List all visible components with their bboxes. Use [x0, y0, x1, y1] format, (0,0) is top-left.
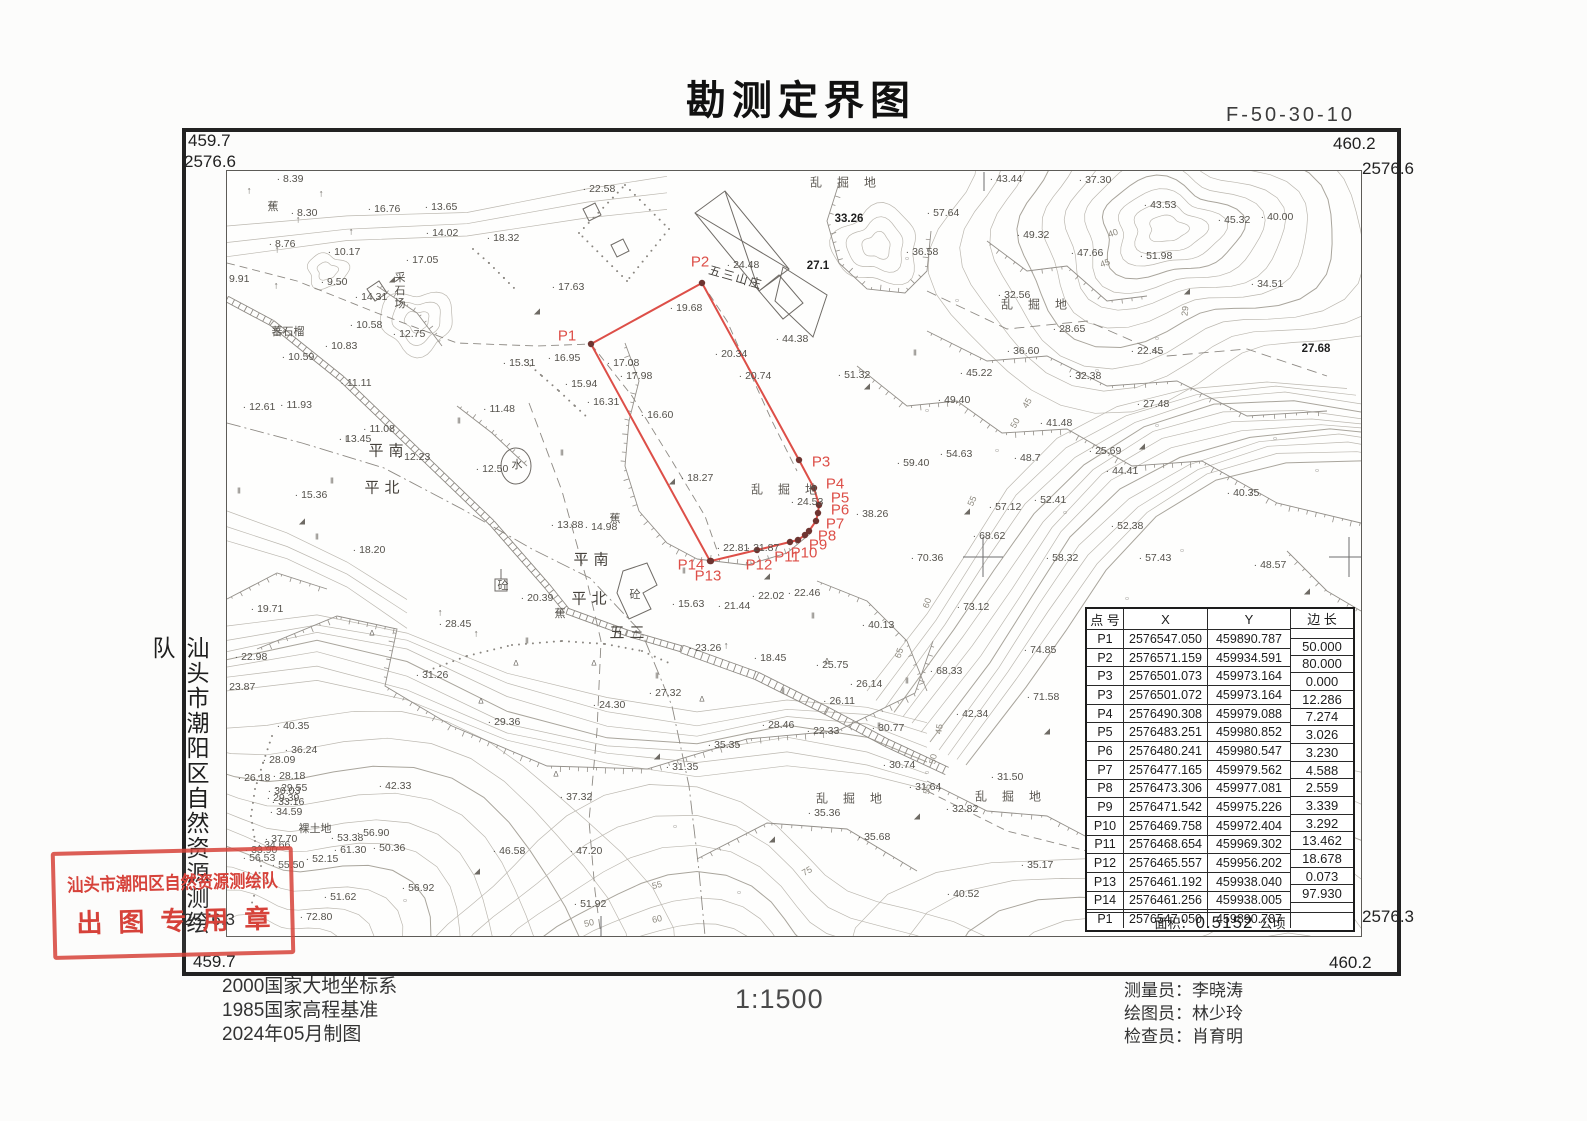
map-symbol: Ⅱ: [237, 487, 241, 496]
elevation-label: 52.41: [1034, 494, 1067, 506]
elevation-label: 57.64: [927, 207, 960, 219]
elevation-label: 40.52: [947, 888, 980, 900]
table-cell: 2576501.073: [1124, 667, 1208, 685]
parcel-boundary: [588, 280, 822, 564]
edge-length-column: 边 长 50.00080.0000.00012.2867.2743.0263.2…: [1291, 609, 1353, 912]
elevation-label: 56.92: [402, 882, 435, 894]
table-cell: 459979.088: [1208, 705, 1291, 723]
elevation-label: 12.75: [393, 328, 426, 340]
elevation-label: 24.30: [593, 699, 626, 711]
elevation-label: 30.74: [883, 759, 916, 771]
contour-label: 50: [583, 917, 595, 929]
table-cell: 459969.302: [1208, 836, 1291, 854]
edge-length-cell: 13.462: [1291, 832, 1353, 850]
datum-line: 2024年05月制图: [222, 1023, 397, 1047]
stamp-line2: 出图专用章: [60, 898, 287, 941]
map-symbol: ○: [1180, 548, 1184, 555]
area-label: 面积：: [1154, 913, 1193, 932]
place-label: 砼: [630, 586, 641, 602]
edge-length-cell: 0.000: [1291, 673, 1353, 691]
elevation-label: 36.60: [1007, 345, 1040, 357]
elevation-label: 28.09: [263, 754, 296, 766]
table-cell: P2: [1087, 649, 1124, 667]
elevation-label: 59.40: [897, 457, 930, 469]
elevation-label: 15.36: [295, 489, 328, 501]
agency-seal-stamp: 汕头市潮阳区自然资源测绘队 出图专用章: [51, 846, 296, 960]
elevation-label: 26.18: [238, 772, 271, 784]
stamp-line1: 汕头市潮阳区自然资源测绘队: [67, 866, 278, 897]
table-row: P12576547.050459890.787: [1087, 630, 1291, 649]
map-symbol: ∆: [825, 657, 830, 666]
elevation-label: 12.61: [243, 401, 276, 413]
table-cell: P1: [1087, 910, 1124, 928]
elevation-label: 57.12: [989, 501, 1022, 513]
elevation-label: 25.75: [816, 659, 849, 671]
table-row: P32576501.073459973.164: [1087, 667, 1291, 686]
map-symbol: ↑: [724, 641, 729, 652]
elevation-label: 16.76: [368, 203, 401, 215]
elevation-label: 49.32: [1017, 229, 1050, 241]
elevation-label: 29.36: [488, 716, 521, 728]
table-row: P82576473.306459977.081: [1087, 780, 1291, 799]
table-cell: 2576483.251: [1124, 723, 1208, 741]
map-symbol: ◢: [864, 382, 870, 391]
elevation-label-bold: 27.68: [1302, 343, 1331, 355]
elevation-label: 20.74: [739, 370, 772, 382]
table-cell: P5: [1087, 723, 1124, 741]
edge-length-cell: 3.292: [1291, 815, 1353, 833]
elevation-label: 17.08: [607, 357, 640, 369]
table-cell: 2576490.308: [1124, 705, 1208, 723]
table-cell: 459890.787: [1208, 630, 1291, 648]
table-cell: 2576501.072: [1124, 686, 1208, 704]
table-cell: P12: [1087, 854, 1124, 872]
edge-length-cell: 7.274: [1291, 709, 1353, 727]
contour-label: 29: [1180, 306, 1191, 317]
table-cell: P7: [1087, 761, 1124, 779]
map-sheet-number: F-50-30-10: [1226, 104, 1355, 127]
elevation-label: 52.38: [1111, 520, 1144, 532]
map-symbol: Ⅱ: [345, 435, 349, 444]
table-row: P142576461.256459938.005: [1087, 892, 1291, 911]
table-cell: 459938.040: [1208, 873, 1291, 891]
map-symbol: ○: [1155, 423, 1159, 430]
corner-northing-top-left: 2576.6: [184, 152, 236, 172]
map-symbol: ○: [737, 890, 741, 897]
credit-line: 检查员：肖育明: [1124, 1025, 1243, 1048]
edge-length-cell: 80.000: [1291, 656, 1353, 674]
datum-line: 2000国家大地坐标系: [222, 975, 397, 999]
table-cell: 459938.005: [1208, 892, 1291, 910]
map-symbol: ∆: [479, 697, 484, 706]
elevation-label: 24.53: [791, 496, 824, 508]
map-symbol: ○: [995, 448, 999, 455]
contour-label: 55: [921, 783, 933, 795]
elevation-label: 11.48: [483, 403, 515, 415]
place-label: 蕉: [268, 198, 279, 214]
elevation-label: 35.35: [708, 739, 741, 751]
elevation-label: 47.20: [570, 845, 603, 857]
table-cell: 2576461.192: [1124, 873, 1208, 891]
vegetation-dots: [249, 184, 670, 910]
elevation-label: 43.53: [1144, 199, 1177, 211]
elevation-label: 22.33: [807, 725, 840, 737]
map-symbol: ∆: [554, 770, 559, 779]
elevation-label: 19.68: [670, 302, 703, 314]
elevation-label: 54.63: [940, 448, 973, 460]
table-header-row: 点 号 X Y: [1087, 609, 1291, 630]
place-label: 五三: [604, 622, 649, 643]
map-symbol: ↑: [634, 628, 639, 639]
elevation-label: 43.44: [990, 173, 1023, 185]
elevation-label: 8.39: [277, 173, 304, 185]
map-symbol: ◢: [389, 275, 395, 284]
credit-line: 测量员：李晓涛: [1124, 979, 1243, 1002]
table-row: P72576477.165459979.562: [1087, 761, 1291, 780]
map-symbol: ◢: [914, 812, 920, 821]
page-title: 勘测定界图: [686, 68, 916, 126]
map-symbol: ◢: [1044, 727, 1050, 736]
elevation-label: 16.95: [548, 352, 581, 364]
map-symbol: ↑: [319, 189, 324, 200]
elevation-label: 28.45: [439, 618, 472, 630]
map-symbol: ↑: [438, 608, 443, 619]
area-unit: 公顷: [1260, 913, 1286, 932]
map-symbol: Ⅱ: [913, 349, 917, 358]
corner-easting-bottom-right: 460.2: [1329, 953, 1372, 973]
elevation-label: 51.98: [1140, 250, 1173, 262]
contour-label: 60: [651, 913, 663, 925]
table-cell: 2576571.159: [1124, 649, 1208, 667]
table-row: P112576468.654459969.302: [1087, 836, 1291, 855]
table-cell: P3: [1087, 667, 1124, 685]
coordinate-table-body: 点 号 X Y P12576547.050459890.787P22576571…: [1087, 609, 1353, 912]
map-symbol: Ⅱ: [811, 612, 815, 621]
map-symbol: ↑: [247, 186, 252, 197]
datum-line: 1985国家高程基准: [222, 999, 397, 1023]
place-label: 砼: [498, 577, 509, 593]
elevation-label: 48.7: [1014, 452, 1041, 464]
map-symbol: ○: [1125, 596, 1129, 603]
table-cell: 459975.226: [1208, 798, 1291, 816]
elevation-label: 34.51: [1251, 278, 1284, 290]
elevation-label: 44.41: [1106, 465, 1139, 477]
elevation-label: 58.32: [1046, 552, 1079, 564]
elevation-label: 44.38: [776, 333, 809, 345]
map-symbol: ↑: [274, 281, 279, 292]
edge-length-cell: 50.000: [1291, 638, 1353, 656]
table-cell: 2576477.165: [1124, 761, 1208, 779]
elevation-label: 13.65: [425, 201, 458, 213]
table-cell: 2576468.654: [1124, 836, 1208, 854]
elevation-label: 35.36: [808, 807, 841, 819]
table-row: P122576465.557459956.202: [1087, 854, 1291, 873]
elevation-label: 17.05: [406, 254, 439, 266]
map-symbol: Ⅱ: [330, 477, 334, 486]
map-symbol: ○: [673, 824, 677, 831]
elevation-label: 42.34: [956, 708, 989, 720]
map-symbol: Ⅱ: [781, 687, 785, 696]
elevation-label: 51.32: [838, 369, 871, 381]
table-row: P42576490.308459979.088: [1087, 705, 1291, 724]
map-symbol: ∆: [700, 695, 705, 704]
elevation-label: 41.48: [1040, 417, 1073, 429]
elevation-label-bold: 33.26: [835, 213, 864, 225]
elevation-label: 18.20: [353, 544, 386, 556]
map-symbol: ↑: [474, 629, 479, 640]
edge-length-cell: 18.678: [1291, 850, 1353, 868]
header-edge-length: 边 长: [1291, 609, 1353, 629]
contour-label: 50: [927, 753, 939, 765]
elevation-label: 17.98: [620, 370, 653, 382]
elevation-label: 31.35: [666, 761, 699, 773]
table-cell: 459973.164: [1208, 667, 1291, 685]
elevation-label: 68.33: [930, 665, 963, 677]
elevation-label: 22.98: [235, 651, 268, 663]
boundary-point-label: P2: [691, 254, 709, 271]
elevation-label: 18.27: [681, 472, 714, 484]
elevation-label: 26.14: [850, 678, 883, 690]
elevation-label: 37.30: [1079, 174, 1112, 186]
table-cell: 459980.852: [1208, 723, 1291, 741]
table-cell: P10: [1087, 817, 1124, 835]
map-scale: 1:1500: [735, 984, 824, 1015]
table-cell: P9: [1087, 798, 1124, 816]
elevation-label: 9.91: [226, 273, 249, 285]
elevation-label: 61.30: [334, 844, 367, 856]
elevation-label: 20.39: [521, 592, 554, 604]
elevation-label: 25.69: [1089, 445, 1122, 457]
header-point: 点 号: [1087, 609, 1124, 629]
table-cell: 2576469.758: [1124, 817, 1208, 835]
elevation-label: 23.87: [226, 681, 255, 693]
elevation-label: 16.60: [641, 409, 674, 421]
elevation-label: 11.11: [340, 377, 371, 389]
elevation-label: 49.40: [938, 394, 971, 406]
elevation-label: 10.58: [350, 319, 383, 331]
elevation-label: 45.22: [960, 367, 993, 379]
table-cell: 2576471.542: [1124, 798, 1208, 816]
table-cell: 459956.202: [1208, 854, 1291, 872]
table-row: P92576471.542459975.226: [1087, 798, 1291, 817]
elevation-label: 22.58: [583, 183, 616, 195]
boundary-point-label: P11: [774, 549, 800, 566]
elevation-label: 17.63: [552, 281, 585, 293]
elevation-label: 21.44: [718, 600, 751, 612]
elevation-label: 27.32: [649, 687, 682, 699]
elevation-label: 38.26: [856, 508, 889, 520]
map-symbol: ◢: [474, 867, 480, 876]
map-symbol: ○: [925, 770, 929, 777]
elevation-label: 10.59: [282, 351, 315, 363]
map-symbol: Ⅱ: [655, 672, 659, 681]
map-symbol: ◢: [1139, 442, 1145, 451]
table-cell: 459973.164: [1208, 686, 1291, 704]
elevation-label: 22.81: [717, 542, 750, 554]
table-row: P102576469.758459972.404: [1087, 817, 1291, 836]
table-cell: 2576465.557: [1124, 854, 1208, 872]
table-cell: 459977.081: [1208, 780, 1291, 798]
elevation-label: 22.45: [1131, 345, 1164, 357]
map-symbol: ○: [1273, 436, 1277, 443]
map-symbol: ○: [1033, 298, 1037, 305]
elevation-label: 56.90: [357, 827, 390, 839]
table-cell: 459972.404: [1208, 817, 1291, 835]
table-row: P22576571.159459934.591: [1087, 649, 1291, 668]
elevation-label: 28.46: [762, 719, 795, 731]
datum-notes: 2000国家大地坐标系1985国家高程基准2024年05月制图: [222, 975, 397, 1047]
elevation-label: 35.17: [1021, 859, 1054, 871]
elevation-label: 14.02: [426, 227, 459, 239]
place-label: 乱掘地: [736, 481, 832, 498]
elevation-label: 36.58: [906, 246, 939, 258]
header-y: Y: [1208, 609, 1291, 629]
table-cell: P8: [1087, 780, 1124, 798]
elevation-label: 8.76: [269, 238, 296, 250]
elevation-label: 15.31: [503, 357, 536, 369]
edge-length-cell: 2.559: [1291, 779, 1353, 797]
header-x: X: [1124, 609, 1208, 629]
elevation-label: 35.68: [858, 831, 891, 843]
elevation-label: 71.58: [1027, 691, 1060, 703]
table-row: P52576483.251459980.852: [1087, 723, 1291, 742]
map-symbol: ◢: [1184, 287, 1190, 296]
elevation-label: 47.66: [1071, 247, 1104, 259]
table-cell: 459979.562: [1208, 761, 1291, 779]
map-symbol: Ⅱ: [525, 637, 529, 646]
map-symbol: ○: [1315, 468, 1319, 475]
elevation-label: 73.12: [957, 601, 990, 613]
table-cell: P1: [1087, 630, 1124, 648]
map-symbol: ○: [1063, 510, 1067, 517]
elevation-label: 19.71: [251, 603, 284, 615]
elevation-label: 68.62: [973, 530, 1006, 542]
corner-easting-top-left: 459.7: [188, 131, 231, 151]
place-label: 裸土地: [299, 820, 332, 836]
map-symbol: ◢: [534, 307, 540, 316]
table-cell: 2576473.306: [1124, 780, 1208, 798]
elevation-label: 40.13: [862, 619, 895, 631]
elevation-label: 57.43: [1139, 552, 1172, 564]
map-symbol: ◢: [669, 477, 675, 486]
map-symbol: Ⅱ: [457, 417, 461, 426]
elevation-label: 42.33: [379, 780, 412, 792]
survey-demarcation-sheet: 勘测定界图 F-50-30-10 459.7 2576.6 460.2 2576…: [0, 0, 1587, 1121]
elevation-label: 50.36: [373, 842, 406, 854]
map-symbol: ◢: [964, 507, 970, 516]
place-label: 平南: [568, 549, 613, 570]
edge-length-cell: 3.230: [1291, 744, 1353, 762]
elevation-label: 12.50: [476, 463, 509, 475]
table-cell: 2576480.241: [1124, 742, 1208, 760]
table-cell: P6: [1087, 742, 1124, 760]
edge-length-cell: 3.026: [1291, 726, 1353, 744]
map-symbol: ◢: [1304, 587, 1310, 596]
elevation-label: 27.48: [1137, 398, 1170, 410]
elevation-label: 40.35: [277, 720, 310, 732]
elevation-label: 51.62: [324, 891, 357, 903]
elevation-label: 18.32: [487, 232, 520, 244]
elevation-label: 34.59: [270, 806, 303, 818]
corner-northing-bottom-right: 2576.3: [1362, 907, 1414, 927]
elevation-label: 37.32: [560, 791, 593, 803]
table-cell: 459980.547: [1208, 742, 1291, 760]
place-label: 蕃石榴: [272, 323, 305, 339]
elevation-label: 22.46: [788, 587, 821, 599]
credit-line: 绘图员：林少玲: [1124, 1002, 1243, 1025]
place-label: 蕉: [555, 605, 566, 621]
area-value: 0.5152: [1196, 913, 1254, 933]
elevation-label: 28.18: [273, 770, 306, 782]
place-label: 蕉: [610, 510, 621, 526]
contour-label: 45: [933, 723, 945, 735]
table-cell: P4: [1087, 705, 1124, 723]
elevation-label: 9.50: [321, 276, 348, 288]
elevation-label: 40.35: [1227, 487, 1260, 499]
elevation-label: 74.85: [1024, 644, 1057, 656]
elevation-label: 31.26: [416, 669, 449, 681]
place-label: 乱掘地: [960, 788, 1056, 805]
edge-length-cell: 3.339: [1291, 797, 1353, 815]
table-row: P62576480.241459980.547: [1087, 742, 1291, 761]
map-symbol: ◢: [654, 752, 660, 761]
table-cell: 459934.591: [1208, 649, 1291, 667]
elevation-label: 31.50: [991, 771, 1024, 783]
table-cell: P14: [1087, 892, 1124, 910]
corner-northing-top-right: 2576.6: [1362, 159, 1414, 179]
table-cell: 2576461.256: [1124, 892, 1208, 910]
elevation-label: 48.57: [1254, 559, 1287, 571]
map-symbol: Ⅱ: [877, 722, 881, 731]
elevation-label: 32.82: [946, 803, 979, 815]
elevation-label: 26.11: [823, 695, 855, 707]
elevation-label: 70.36: [911, 552, 944, 564]
edge-length-cell: 0.073: [1291, 868, 1353, 886]
coordinate-table: 点 号 X Y P12576547.050459890.787P22576571…: [1085, 607, 1355, 932]
edge-length-cell: 4.588: [1291, 762, 1353, 780]
place-label: 水: [512, 456, 523, 472]
boundary-point-label: P1: [558, 328, 576, 345]
map-symbol: Ⅱ: [905, 677, 909, 686]
elevation-label: 20.34: [715, 348, 748, 360]
map-symbol: ◢: [299, 517, 305, 526]
map-symbol: ○: [403, 898, 407, 905]
table-rows: P12576547.050459890.787P22576571.1594599…: [1087, 630, 1291, 928]
map-symbol: ↑: [349, 227, 354, 238]
table-cell: 2576547.050: [1124, 630, 1208, 648]
table-cell: P3: [1087, 686, 1124, 704]
elevation-label: 11.93: [280, 399, 312, 411]
elevation-label-bold: 27.1: [807, 260, 829, 272]
boundary-point-label: P14: [678, 557, 705, 574]
table-cell: P11: [1087, 836, 1124, 854]
elevation-label: 51.92: [574, 898, 607, 910]
elevation-label: 10.17: [328, 246, 361, 258]
map-symbol: ○: [925, 408, 929, 415]
corner-easting-top-right: 460.2: [1333, 134, 1376, 154]
map-symbol: ∆: [592, 659, 597, 668]
map-symbol: ○: [955, 298, 959, 305]
map-symbol: ○: [1095, 368, 1099, 375]
map-symbol: ◢: [769, 835, 775, 844]
elevation-label: 13.88: [551, 519, 584, 531]
place-label: 平北: [566, 588, 611, 609]
boundary-point-label: P3: [812, 454, 830, 471]
elevation-label: 40.00: [1261, 211, 1294, 223]
place-label: 平南: [363, 440, 408, 461]
place-label: 乱掘地: [801, 790, 897, 807]
elevation-label: 22.02: [752, 590, 785, 602]
